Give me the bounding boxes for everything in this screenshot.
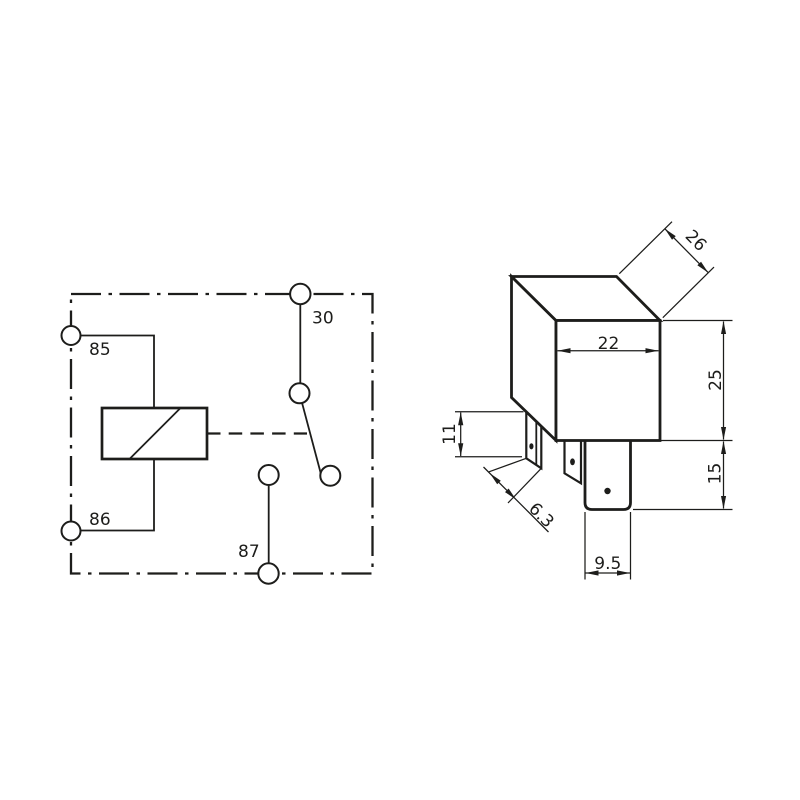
terminal-87-label: 87 <box>238 542 260 562</box>
middle-pin-hole <box>570 458 575 465</box>
arrowhead <box>721 427 726 440</box>
relay-circuit-schematic: 85 86 30 87 <box>62 284 373 584</box>
side-pin-hole <box>529 443 533 449</box>
terminal-30-label: 30 <box>312 309 334 329</box>
dimension-main-pin-width-label: 9.5 <box>594 554 621 574</box>
technical-drawing-canvas: 85 86 30 87 <box>0 0 800 800</box>
relay-body <box>512 277 661 441</box>
dimension-pin-length-label: 15 <box>706 463 726 485</box>
extension-line <box>489 458 526 472</box>
arrowhead <box>721 441 726 454</box>
main-pin-hole <box>604 488 610 494</box>
terminal-30-circle <box>290 284 310 304</box>
main-pin <box>585 440 631 510</box>
extension-line <box>619 222 672 274</box>
arrowhead <box>721 321 726 334</box>
arrowhead <box>721 496 726 509</box>
dimension-body-height-label: 25 <box>706 369 726 391</box>
dimension-width-label: 22 <box>598 334 620 354</box>
dimension-side-pin-width-label: 6.3 <box>524 499 557 532</box>
blade-end-circle <box>320 466 340 486</box>
terminal-85-label: 85 <box>89 340 111 360</box>
terminal-86-circle <box>62 522 81 541</box>
relay-dimension-drawing: 26 22 25 15 <box>440 222 733 580</box>
dimension-depth-label: 26 <box>681 226 710 255</box>
dimension-side-pin-11: 11 <box>440 412 524 457</box>
terminal-87-circle <box>258 563 278 583</box>
wire-coil-to-terminal-86 <box>71 459 154 531</box>
contact-pivot-circle <box>290 383 310 403</box>
contact-87-circle <box>259 465 279 485</box>
dimension-main-pin-95: 9.5 <box>585 512 631 580</box>
wire-terminal-85-to-coil <box>71 336 154 409</box>
dimension-side-pin-height-label: 11 <box>440 423 460 445</box>
drawing-svg: 85 86 30 87 <box>0 0 800 800</box>
terminal-86-label: 86 <box>89 510 111 530</box>
terminal-85-circle <box>62 326 81 345</box>
extension-line <box>663 267 714 318</box>
dimension-side-pin-63: 6.3 <box>484 458 558 532</box>
extension-line <box>508 468 541 503</box>
switch-blade <box>300 393 323 478</box>
